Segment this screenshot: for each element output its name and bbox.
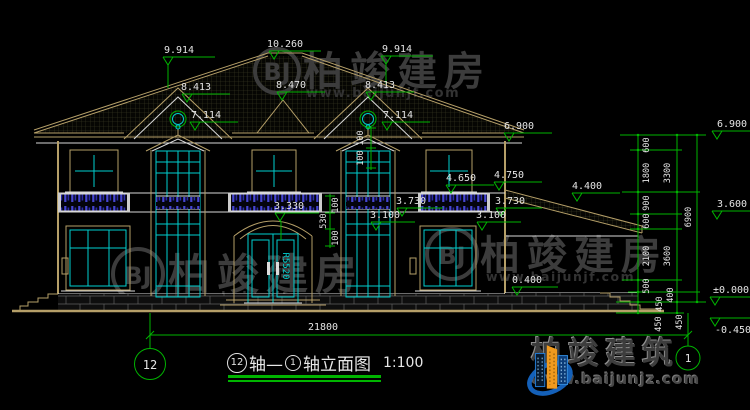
small-dim: 100 [356,150,366,165]
svg-text:8.413: 8.413 [365,80,395,91]
drawing-scale: 1:100 [383,355,423,371]
brand-logo: 柏竣建筑 www.baijunjz.com [527,337,700,388]
svg-text:8.413: 8.413 [181,82,211,93]
title-underline [228,380,381,382]
svg-text:0.400: 0.400 [512,275,542,286]
door-handle-icon [276,262,279,275]
door-side-dims: 100 530 100 [319,194,341,248]
svg-text:4.650: 4.650 [446,173,476,184]
svg-text:3.730: 3.730 [396,196,426,207]
svg-text:3.730: 3.730 [495,196,525,207]
title-text: 轴— [249,350,283,375]
level-flag: 3.600 [712,199,750,219]
level-flag: 4.750 [494,170,542,190]
door-handle-icon [267,262,270,275]
level-flag: ±0.000 [710,285,750,305]
door-arc-radius-label: R5520 [280,252,290,279]
chain-dim: 400 [666,287,676,302]
svg-text:6.900: 6.900 [504,121,534,132]
chain-dim: 3600 [663,246,673,266]
svg-text:10.260: 10.260 [267,39,303,50]
svg-text:3.600: 3.600 [717,199,747,210]
cad-elevation-screenshot: BJ 柏竣建房 www.baijunjf.com BJ 柏竣建房 www.bai… [0,0,750,410]
chain-dim: 1800 [642,163,652,183]
small-dim: 100 [331,230,341,245]
base-ground [12,293,664,311]
drawing-title: 12轴—1轴立面图1:100 [227,350,423,375]
level-flag: 4.400 [572,181,620,201]
level-flag: 6.900 [504,121,552,141]
second-floor-windows [65,150,477,192]
level-flag: 3.100 [370,210,415,230]
small-dim: 100 [356,130,366,145]
svg-text:8.470: 8.470 [276,80,306,91]
left-steps [20,294,58,311]
level-flag: 4.650 [446,173,494,193]
svg-text:7.114: 7.114 [191,110,221,121]
chain-dim: 600 [642,137,652,152]
chain-dim: 600 [642,213,652,228]
svg-text:7.114: 7.114 [383,110,413,121]
level-flag: -0.450 [710,318,750,336]
svg-text:9.914: 9.914 [164,45,194,56]
overall-dim-label: 21800 [308,322,338,333]
title-text: 轴立面图 [303,350,371,375]
level-flag: 6.900 [712,119,750,139]
chain-dim: 450 [675,314,685,329]
svg-text:3.330: 3.330 [274,201,304,212]
svg-text:6.900: 6.900 [717,119,747,130]
chain-dim: 2100 [642,246,652,266]
svg-text:-0.450: -0.450 [715,325,750,336]
title-underline [228,375,381,378]
axis-bubble-1: 1 [285,355,301,371]
svg-text:3.100: 3.100 [476,210,506,221]
svg-text:±0.000: ±0.000 [713,285,749,296]
watermark-initials: BJ [124,262,151,290]
brand-logo-icon [527,337,579,401]
small-dim: 100 [331,197,341,212]
wall-niche [62,258,68,274]
axis-bubble-12: 12 [227,353,247,373]
chain-dim: 450 [655,296,665,311]
svg-text:4.400: 4.400 [572,181,602,192]
chain-dim: 500 [642,278,652,293]
level-flag: 3.100 [476,210,521,230]
watermark-initials: BJ [438,242,465,270]
chain-dim: 3300 [663,163,673,183]
small-dim: 530 [319,213,329,228]
chain-dim: 900 [642,195,652,210]
svg-text:4.750: 4.750 [494,170,524,181]
svg-text:9.914: 9.914 [382,44,412,55]
axis-number-left: 12 [143,358,157,372]
chain-dim: 6900 [684,207,694,227]
svg-text:3.100: 3.100 [370,210,400,221]
watermark-url: www.baijunjf.com [486,269,635,284]
wall-niche [410,258,416,274]
watermark-right: BJ 柏竣建房 www.baijunjf.com [427,229,668,284]
chain-dim: 450 [654,316,664,331]
